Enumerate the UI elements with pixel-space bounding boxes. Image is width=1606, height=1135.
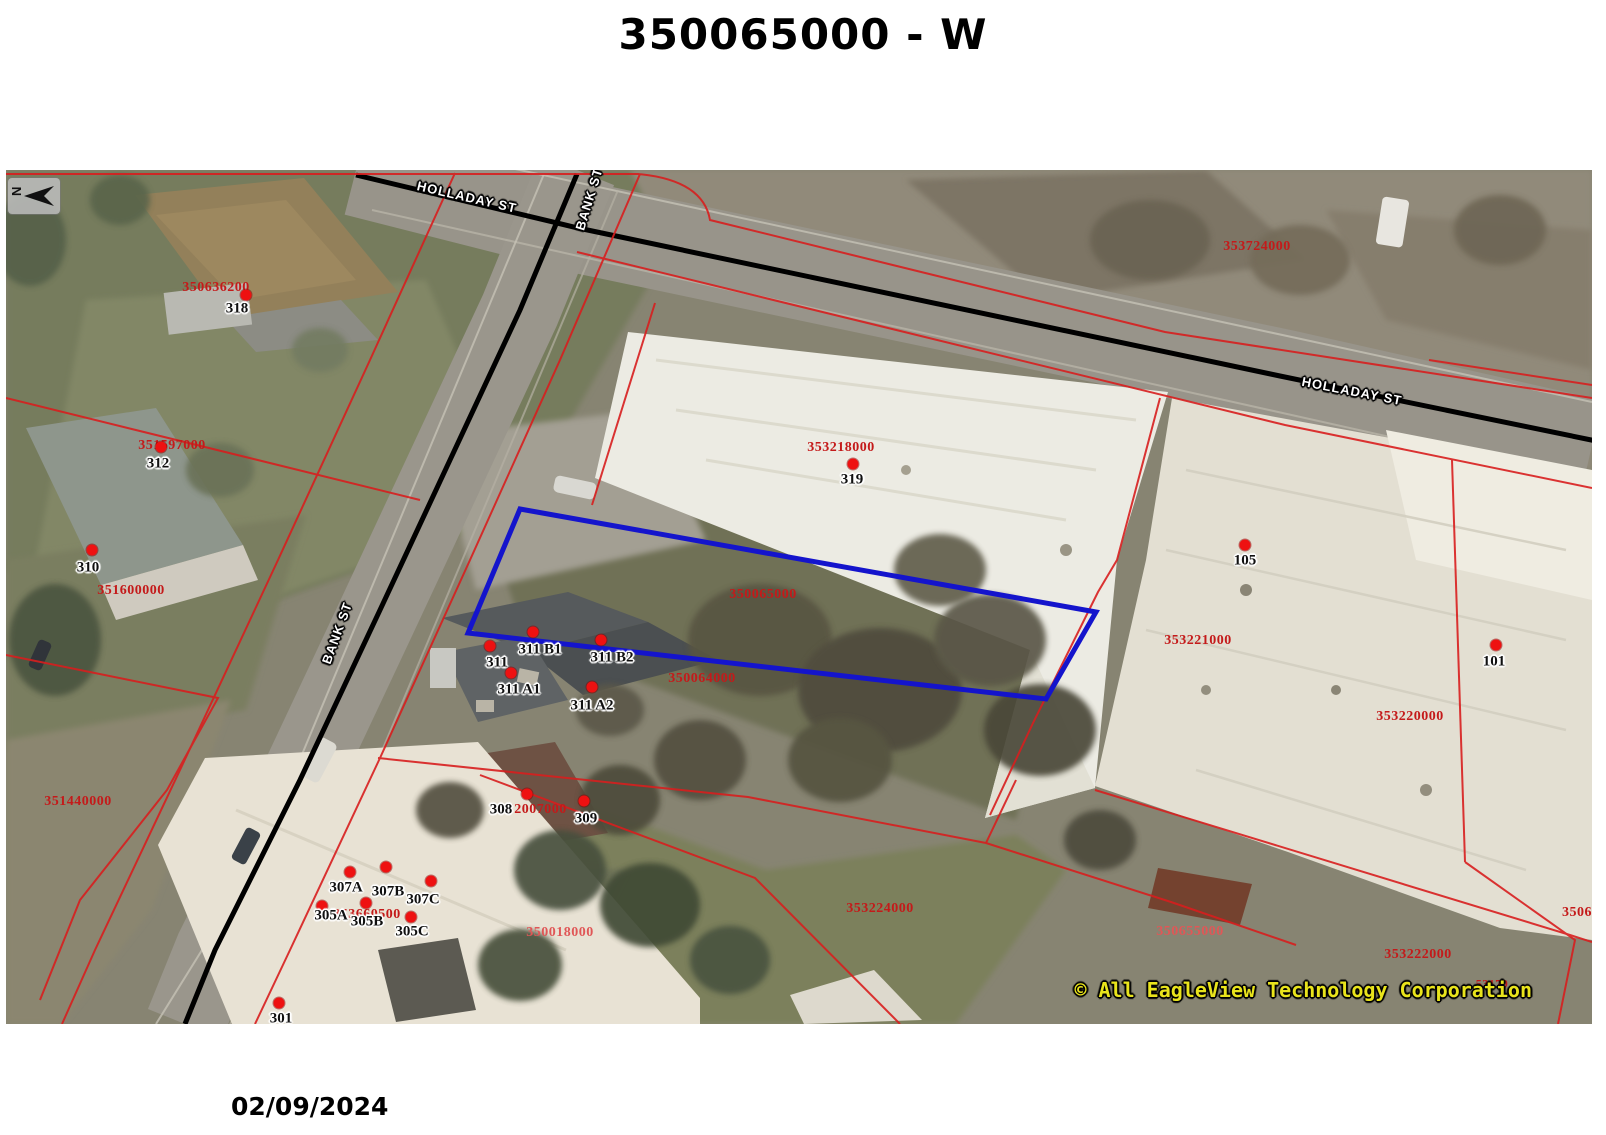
page-title: 350065000 - W [0, 10, 1606, 59]
north-label-glyph: N [9, 187, 24, 196]
north-arrow-icon [24, 186, 54, 206]
map-report-page: 350065000 - W [0, 0, 1606, 1135]
aerial-photo [6, 170, 1592, 1024]
north-arrow: N [8, 178, 60, 214]
image-date: 02/09/2024 [231, 1092, 388, 1121]
aerial-map[interactable]: N 35063620035159700035160000035144000035… [6, 170, 1592, 1024]
